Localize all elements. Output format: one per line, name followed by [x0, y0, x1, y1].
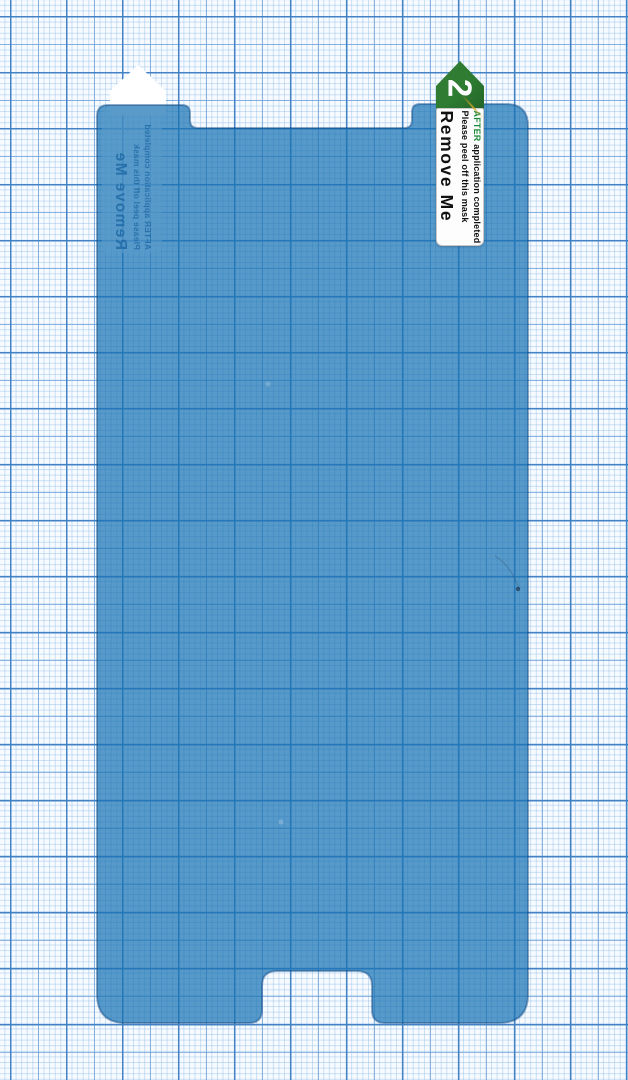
film-speck: [266, 382, 271, 387]
peel-tab-front: AFTER application completed Please peel …: [436, 108, 484, 246]
back-tab-title: Remove Me: [111, 112, 130, 250]
back-tab-instruction-1: Please peel off this mask: [131, 112, 142, 250]
back-tab-mirrored-text: AFTER application completed Please peel …: [110, 112, 154, 250]
peel-tab-back: AFTER application completed Please peel …: [102, 109, 162, 253]
front-tab-instruction-2: AFTER application completed: [471, 111, 484, 244]
graph-paper-background: AFTER application completed Please peel …: [0, 0, 628, 1080]
front-tab-step-number: 2: [444, 79, 477, 97]
front-tab-arrow-up-icon: 2: [436, 61, 484, 109]
screen-protector-film: [0, 0, 628, 1080]
front-tab-text: AFTER application completed Please peel …: [437, 111, 483, 244]
film-speck: [516, 587, 520, 591]
back-tab-instruction-2: AFTER application completed: [142, 112, 153, 250]
film-scratch: [495, 556, 519, 588]
back-tab-arrow-up-icon: [110, 65, 166, 115]
front-tab-title: Remove Me: [437, 111, 458, 244]
front-tab-instruction-rest: application completed: [473, 142, 483, 244]
front-tab-instruction-1: Please peel off this mask: [459, 111, 472, 244]
film-speck: [279, 820, 284, 825]
